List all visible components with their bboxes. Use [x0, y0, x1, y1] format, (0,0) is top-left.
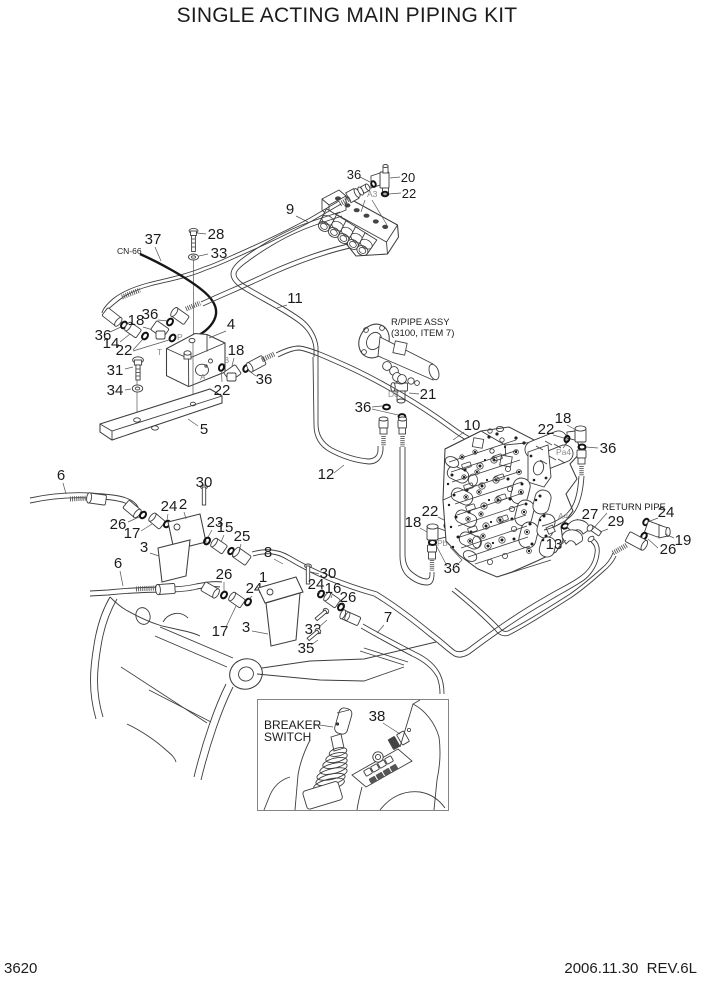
svg-text:SINGLE ACTING MAIN PIPING KIT: SINGLE ACTING MAIN PIPING KIT	[177, 4, 518, 27]
svg-text:A3: A3	[367, 189, 378, 199]
svg-text:P: P	[177, 332, 183, 342]
svg-text:22: 22	[116, 342, 133, 359]
svg-text:8: 8	[264, 544, 272, 561]
svg-text:3: 3	[140, 539, 148, 556]
svg-text:30: 30	[196, 474, 213, 491]
svg-text:17: 17	[124, 525, 141, 542]
svg-text:9: 9	[286, 201, 294, 218]
svg-text:R/PIPE ASSY: R/PIPE ASSY	[391, 317, 450, 328]
svg-text:20: 20	[401, 170, 415, 185]
svg-text:6: 6	[57, 467, 65, 484]
svg-text:18: 18	[405, 514, 422, 531]
svg-text:D8: D8	[388, 389, 399, 399]
svg-text:10: 10	[464, 417, 481, 434]
svg-text:19: 19	[675, 532, 692, 549]
svg-text:7: 7	[384, 609, 392, 626]
svg-text:21: 21	[420, 386, 437, 403]
svg-text:5: 5	[200, 421, 208, 438]
svg-text:2006.11.30 REV.6L: 2006.11.30 REV.6L	[564, 960, 697, 977]
svg-text:18: 18	[228, 342, 245, 359]
svg-text:38: 38	[369, 708, 386, 725]
svg-text:28: 28	[208, 226, 225, 243]
svg-text:24: 24	[658, 504, 675, 521]
svg-text:2: 2	[179, 496, 187, 513]
svg-text:3: 3	[242, 619, 250, 636]
svg-text:15: 15	[217, 519, 234, 536]
svg-text:A: A	[200, 372, 206, 382]
svg-text:1: 1	[259, 569, 267, 586]
svg-text:33: 33	[211, 245, 228, 262]
svg-text:36: 36	[142, 306, 159, 323]
svg-text:26: 26	[340, 589, 357, 606]
svg-text:26: 26	[660, 541, 677, 558]
svg-text:26: 26	[216, 566, 233, 583]
svg-text:35: 35	[298, 640, 315, 657]
svg-text:36: 36	[600, 440, 617, 457]
svg-text:T: T	[157, 347, 162, 357]
svg-text:CN-66: CN-66	[117, 246, 142, 256]
svg-text:3620: 3620	[4, 960, 37, 977]
svg-text:29: 29	[608, 513, 625, 530]
svg-text:SWITCH: SWITCH	[264, 730, 311, 744]
svg-text:17: 17	[212, 623, 229, 640]
svg-text:36: 36	[347, 167, 361, 182]
svg-text:37: 37	[145, 231, 162, 248]
svg-text:34: 34	[107, 382, 124, 399]
svg-text:31: 31	[107, 362, 124, 379]
svg-text:22: 22	[214, 382, 231, 399]
svg-text:24: 24	[308, 576, 325, 593]
svg-text:22: 22	[538, 421, 555, 438]
svg-text:22: 22	[422, 503, 439, 520]
svg-text:36: 36	[355, 399, 372, 416]
svg-text:13: 13	[546, 536, 563, 553]
svg-text:27: 27	[582, 506, 599, 523]
svg-text:12: 12	[318, 466, 335, 483]
svg-text:A4: A4	[558, 511, 569, 521]
svg-text:Pa4: Pa4	[556, 447, 571, 457]
svg-text:4: 4	[227, 316, 235, 333]
svg-text:18: 18	[555, 410, 572, 427]
svg-text:36: 36	[444, 560, 461, 577]
svg-text:11: 11	[287, 290, 303, 307]
svg-text:24: 24	[161, 498, 178, 515]
svg-text:6: 6	[114, 555, 122, 572]
svg-text:RETURN PIPE: RETURN PIPE	[602, 502, 666, 513]
svg-text:25: 25	[234, 528, 251, 545]
svg-text:36: 36	[256, 371, 273, 388]
svg-text:(3100, ITEM 7): (3100, ITEM 7)	[391, 328, 454, 339]
svg-text:22: 22	[402, 186, 416, 201]
